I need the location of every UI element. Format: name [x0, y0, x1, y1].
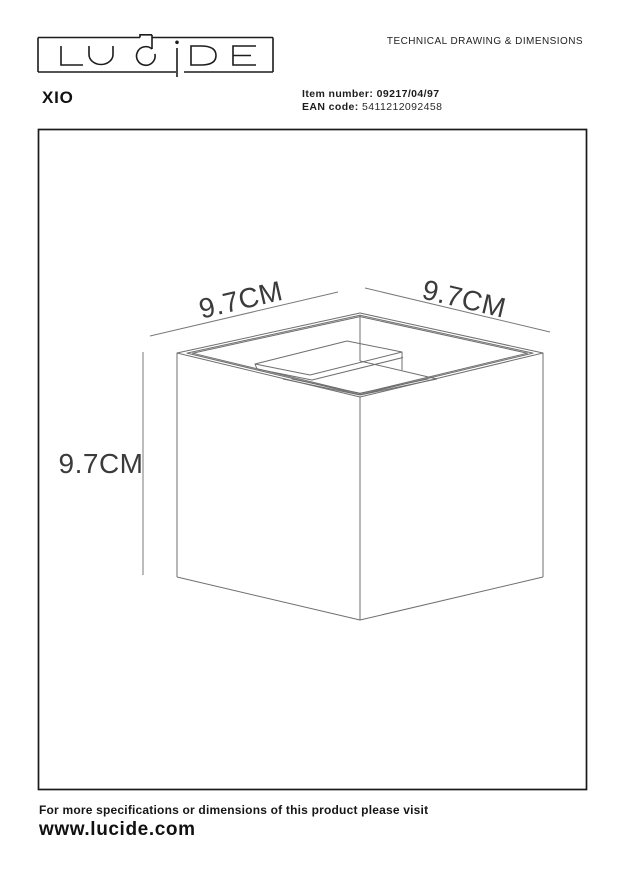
aperture-back-right-edge	[360, 361, 437, 379]
mount-plate-top-face	[255, 341, 402, 375]
dimension-label-top-left: 9.7CM	[196, 275, 286, 325]
dimension-label-top-right: 9.7CM	[419, 274, 509, 324]
spec-sheet-page: { "page": { "background": "#ffffff" }, "…	[0, 0, 620, 877]
cube-drawing	[177, 313, 543, 620]
footer-note: For more specifications or dimensions of…	[39, 803, 428, 817]
dimension-label-height: 9.7CM	[59, 448, 144, 479]
footer-website: www.lucide.com	[39, 819, 196, 841]
technical-drawing: 9.7CM 9.7CM 9.7CM	[0, 0, 620, 877]
aperture-front-inner-line	[292, 379, 429, 393]
dimension-lines	[143, 288, 550, 575]
